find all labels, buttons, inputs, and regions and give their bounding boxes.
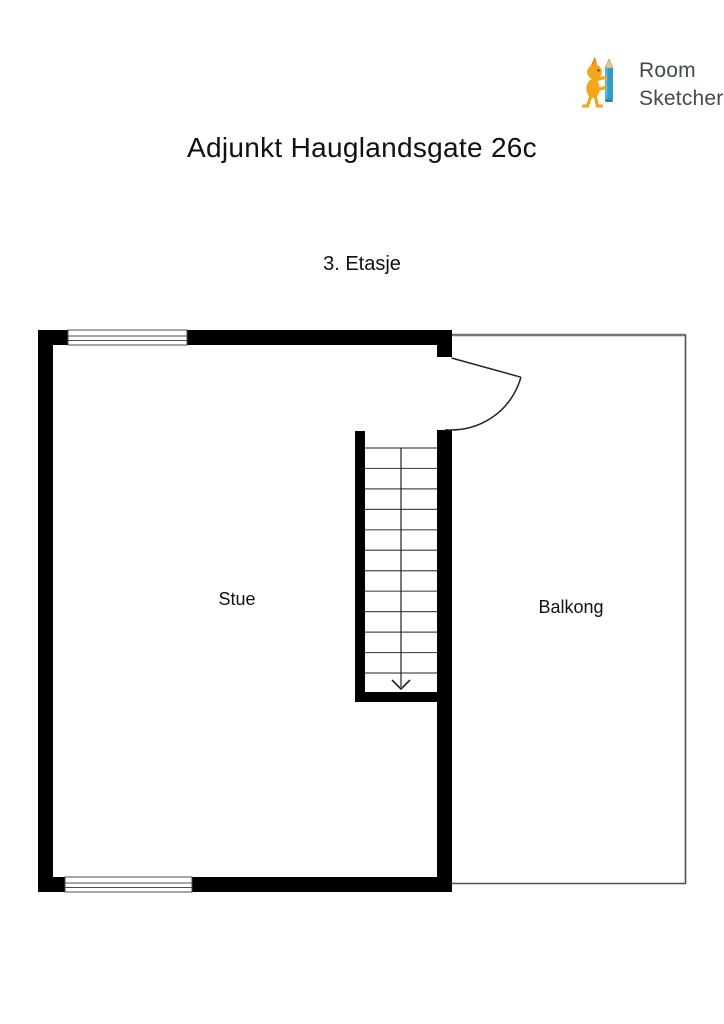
staircase xyxy=(355,431,437,702)
exterior-walls xyxy=(38,330,452,892)
window-symbol-bottom xyxy=(65,877,192,892)
floor-plan-drawing xyxy=(0,0,724,1024)
floorplan-page: { "header": { "logo": { "line1": "Room",… xyxy=(0,0,724,1024)
room-label-balkong: Balkong xyxy=(516,597,626,618)
window-symbol-top xyxy=(68,330,187,345)
stair-walls xyxy=(355,431,437,702)
door-symbol xyxy=(445,358,521,430)
room-label-stue: Stue xyxy=(182,589,292,610)
